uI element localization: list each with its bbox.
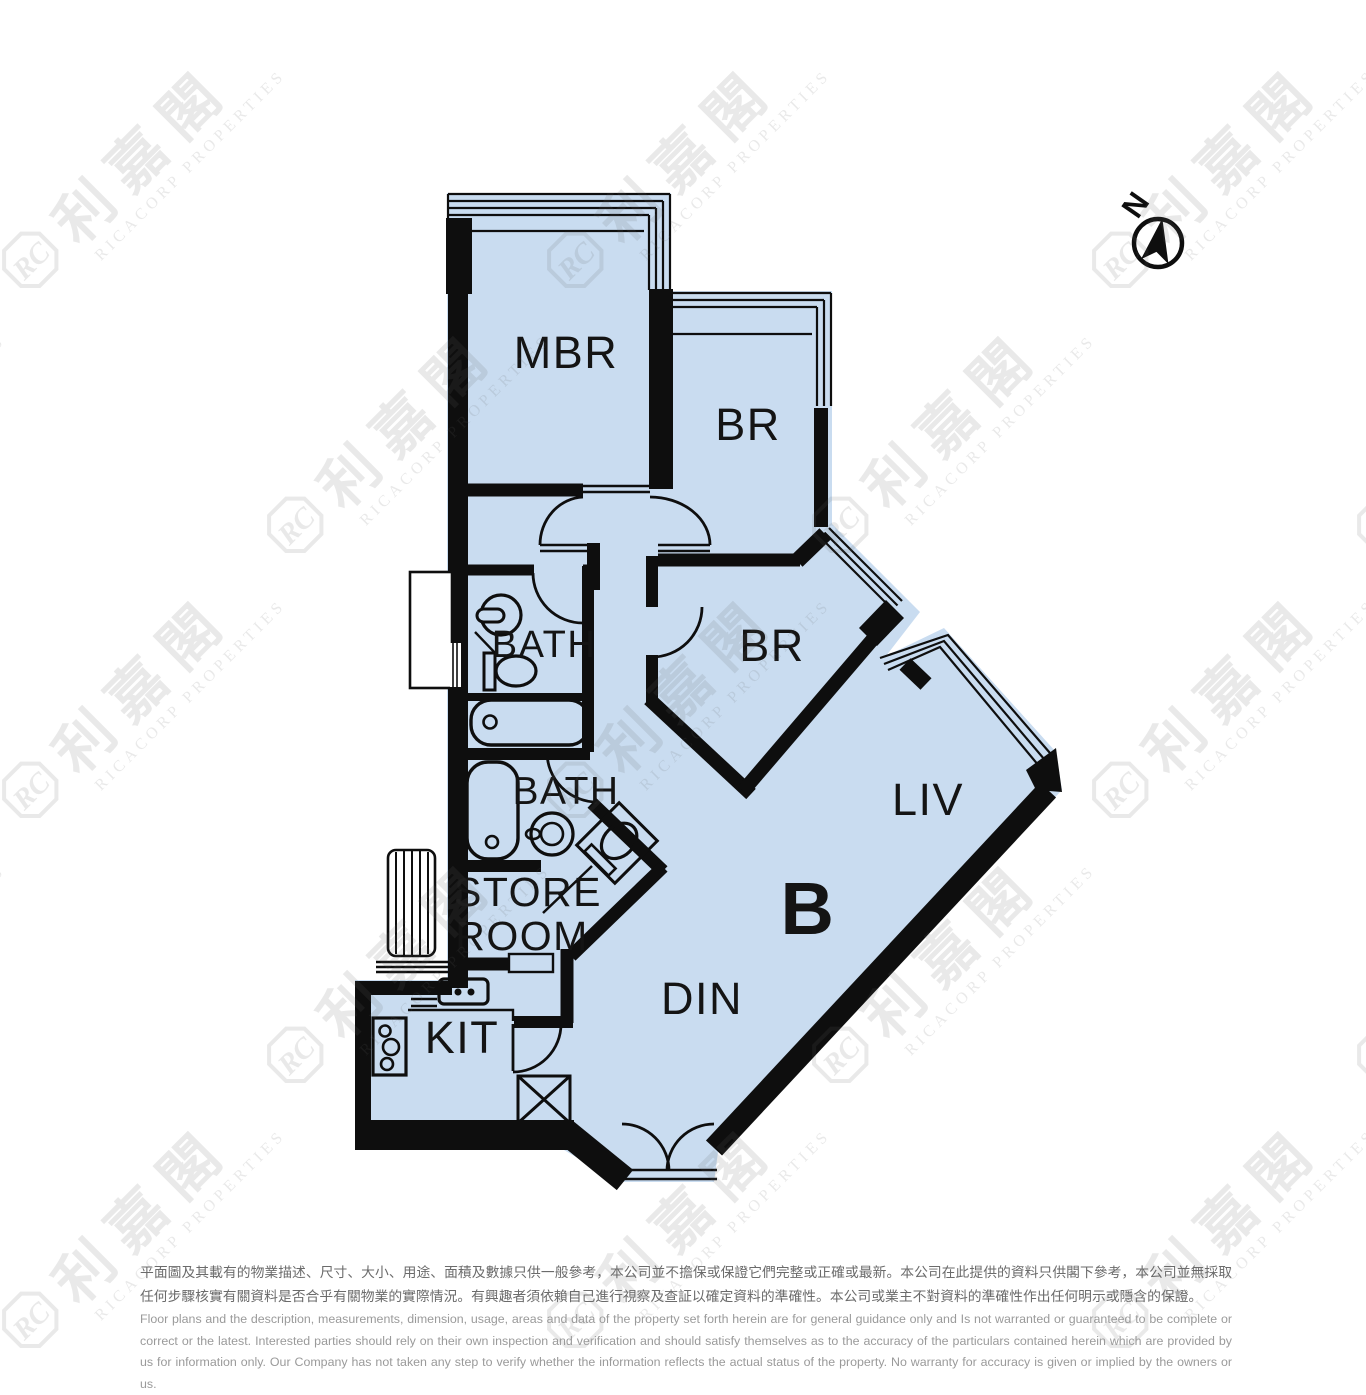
room-label-bath-upper: BATH [492, 624, 597, 666]
room-label-bath-lower: BATH [512, 770, 619, 813]
room-label-din: DIN [661, 973, 743, 1024]
north-compass: N [1115, 186, 1182, 267]
room-label-mbr: MBR [514, 327, 619, 378]
room-label-room: ROOM [455, 913, 589, 959]
room-label-br-mid: BR [739, 620, 805, 671]
room-label-kit: KIT [425, 1012, 500, 1063]
room-label-store: STORE [454, 869, 602, 915]
disclaimer-chinese: 平面圖及其載有的物業描述、尺寸、大小、用途、面積及數據只供一般參考，本公司並不擔… [140, 1261, 1232, 1308]
room-label-br-top: BR [715, 399, 781, 450]
floor-plan: MBR BR BR BATH BATH STORE ROOM KIT DIN L… [0, 0, 1366, 1366]
disclaimer-english: Floor plans and the description, measure… [140, 1309, 1232, 1395]
louver-platform [388, 850, 435, 956]
room-label-liv: LIV [892, 774, 964, 825]
unit-label: B [781, 867, 836, 950]
